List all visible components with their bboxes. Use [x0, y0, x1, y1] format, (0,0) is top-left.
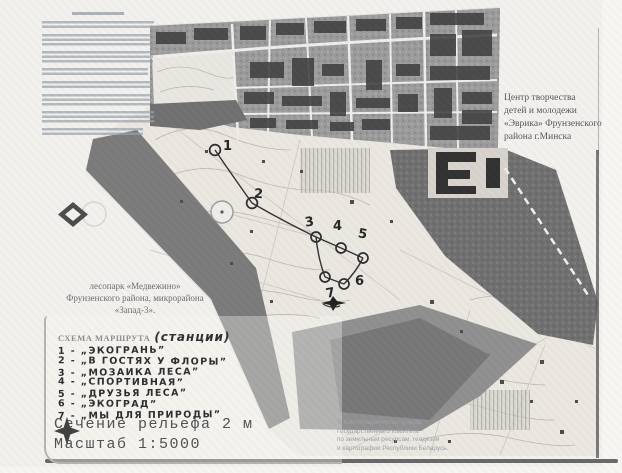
- instructions-text-block: [42, 12, 154, 141]
- e-building: [428, 148, 508, 198]
- org-line: детей и молодежи: [504, 105, 610, 118]
- instructions-heading-line: [72, 12, 124, 15]
- instructions-paragraph: [42, 68, 148, 77]
- instructions-paragraph: [42, 34, 151, 47]
- diamond-symbol: [58, 202, 88, 227]
- route-point-label-2: 2: [254, 188, 264, 202]
- park-line: лесопарк «Медвежино»: [46, 280, 224, 292]
- route-point-label-1: 1: [223, 140, 232, 153]
- park-caption: лесопарк «Медвежино» Фрунзенского района…: [46, 280, 224, 316]
- instructions-paragraph: [42, 111, 154, 124]
- forest-pocket: [152, 52, 238, 106]
- map-legend: Сечение рельефа 2 м Масштаб 1:5000: [54, 416, 254, 453]
- scanned-map-page: Центр творчества детей и молодежи «Эврик…: [0, 0, 622, 473]
- copyright-line: © Картографическая основа: [337, 419, 477, 428]
- compass-star-icon: [54, 416, 80, 446]
- route-point-label-6: 6: [355, 275, 364, 288]
- paper-margin-right: [602, 0, 622, 473]
- copyright-line: по земельным ресурсам, геодезии: [337, 436, 477, 445]
- paper-margin-bottom: [0, 467, 622, 473]
- right-border-line: [596, 150, 599, 458]
- clearing-dot: [220, 210, 223, 213]
- instructions-paragraph: [42, 81, 152, 90]
- instructions-paragraph: [42, 94, 150, 107]
- copyright-line: Государственного комитета: [337, 428, 477, 437]
- legend-panel: СХЕМА МАРШРУТА (станции) 1 - „ЭКОГРАНЬ” …: [44, 316, 342, 464]
- route-point-label-4: 4: [333, 220, 342, 233]
- station-list: 1 - „ЭКОГРАНЬ” 2 - „В ГОСТЯХ У ФЛОРЫ” 3 …: [58, 345, 227, 421]
- park-line: «Запад-3».: [46, 304, 224, 316]
- org-line: «Эврика» Фрунзенского: [504, 118, 610, 131]
- route-scheme-title: СХЕМА МАРШРУТА (станции): [58, 328, 230, 346]
- instructions-paragraph: [42, 51, 153, 64]
- instructions-paragraph: [42, 128, 143, 137]
- route-scheme-title-hand: (станции): [154, 330, 230, 344]
- park-line: Фрунзенского района, микрорайона: [46, 292, 224, 304]
- organization-caption: Центр творчества детей и молодежи «Эврик…: [504, 92, 610, 144]
- contour-interval-text: Сечение рельефа 2 м: [54, 416, 254, 433]
- instructions-paragraph: [42, 21, 154, 30]
- scale-text: Масштаб 1:5000: [54, 436, 254, 453]
- org-line: Центр творчества: [504, 92, 610, 105]
- route-point-label-3: 3: [304, 215, 315, 229]
- copyright-line: и картографии Республики Беларусь.: [337, 445, 477, 454]
- org-line: района г.Минска: [504, 131, 610, 144]
- copyright-caption: © Картографическая основа Государственно…: [337, 419, 477, 453]
- route-scheme-title-printed: СХЕМА МАРШРУТА: [58, 333, 150, 343]
